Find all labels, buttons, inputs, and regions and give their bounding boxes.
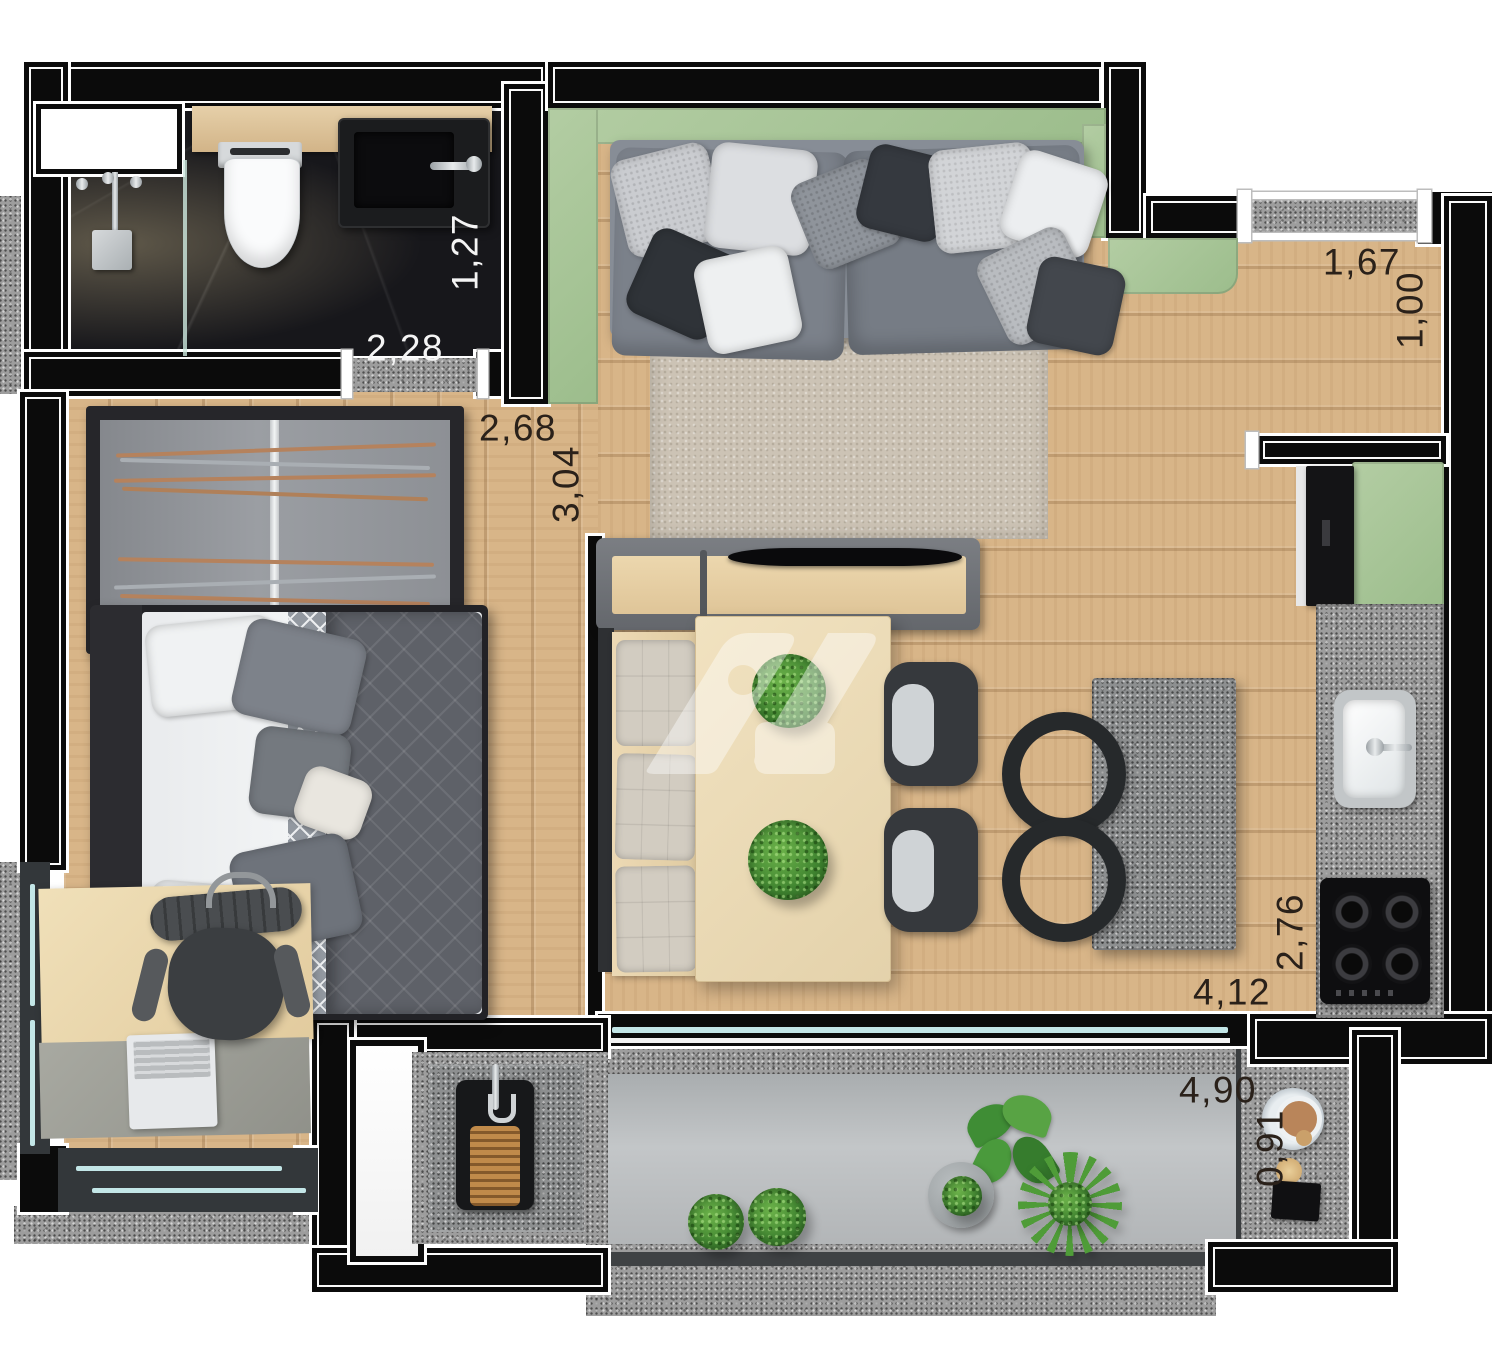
wall (1208, 1242, 1398, 1292)
toilet (224, 158, 300, 268)
window-glass (30, 1020, 35, 1146)
toilet-tank-lid (230, 148, 290, 155)
sofa-pillow (691, 243, 805, 357)
dim-kitchen-width: 4,12 (1193, 974, 1271, 1011)
wall (504, 84, 548, 404)
rug (650, 333, 1048, 539)
bathroom-sink-basin (354, 132, 454, 208)
fridge-display (1322, 520, 1330, 546)
bar-stool (1002, 818, 1126, 942)
door-jamb (478, 350, 488, 398)
stove-burner (1382, 892, 1422, 932)
bedroom-bottom-window-wall (58, 1148, 318, 1212)
stove-burner (1332, 892, 1372, 932)
dim-entry-depth: 1,00 (1392, 271, 1429, 349)
wall (1258, 436, 1446, 464)
shower-valve (76, 178, 88, 190)
door-jamb (342, 350, 352, 398)
stove-burner (1332, 944, 1372, 984)
sliding-door-glass (612, 1027, 1228, 1033)
sliding-door-frame (610, 1038, 1230, 1043)
stove-knobs (1336, 990, 1396, 996)
sofa-pillow (1024, 254, 1128, 358)
shower-valve (130, 176, 142, 188)
washboard (470, 1126, 520, 1206)
door-jamb (1238, 190, 1251, 242)
wall (24, 62, 548, 108)
entry-door-threshold (1250, 198, 1420, 236)
wall (1104, 62, 1146, 238)
wall (24, 352, 348, 396)
bedroom-side-sill (0, 862, 22, 1180)
stove-burner (1382, 944, 1422, 984)
kitchen-faucet-base (1366, 738, 1384, 756)
cookie (1296, 1130, 1312, 1146)
dining-chair-seat (892, 830, 934, 912)
tv (728, 548, 962, 566)
dim-kitchen-depth: 2,76 (1272, 893, 1309, 971)
bathroom-window (36, 104, 182, 174)
dim-bathroom-depth: 1,27 (447, 213, 484, 291)
kitchen-door-jamb (1246, 432, 1258, 468)
living-top-cabinet (548, 108, 1106, 144)
dim-balcony-depth: 0,91 (1252, 1109, 1289, 1187)
sink-faucet-knob (466, 156, 482, 172)
balcony-plant (688, 1194, 744, 1250)
fridge (1296, 466, 1306, 606)
dim-hall-width: 2,68 (479, 410, 557, 447)
laptop-keyboard (133, 1039, 210, 1080)
fridge-cabinet (1352, 462, 1444, 606)
window-glass (30, 884, 35, 1006)
door-jamb (1244, 192, 1424, 199)
window-glass (76, 1166, 282, 1171)
wall (20, 392, 66, 870)
door-jamb (1418, 190, 1431, 242)
shower-head (92, 230, 132, 270)
entry-sideboard (1108, 238, 1238, 294)
fridge (1306, 466, 1354, 606)
shower-glass-partition (183, 160, 187, 356)
balcony-plant (748, 1188, 806, 1246)
dim-balcony-width: 4,90 (1179, 1072, 1257, 1109)
shower-valve (102, 172, 114, 184)
table-plant (748, 820, 828, 900)
window-glass (92, 1188, 306, 1193)
balcony-parapet-groove (598, 1252, 1210, 1266)
pot-plant (942, 1176, 982, 1216)
laundry-faucet-hook (488, 1094, 516, 1123)
dim-hall-depth: 3,04 (548, 445, 585, 523)
bench-cushion (615, 865, 697, 972)
watermark-logo-icon (640, 610, 912, 786)
wall (1444, 196, 1492, 1064)
exterior-notch (1146, 0, 1500, 196)
living-side-cabinet (548, 108, 598, 404)
wall (548, 62, 1106, 108)
door-jamb (1244, 233, 1424, 240)
floor-plan: 2,28 1,27 2,68 3,04 1,67 1,00 2,76 4,12 … (0, 0, 1500, 1363)
dim-bathroom-width: 2,28 (366, 330, 444, 367)
bathroom-window-sill (0, 196, 24, 394)
fern-center (1048, 1182, 1092, 1226)
